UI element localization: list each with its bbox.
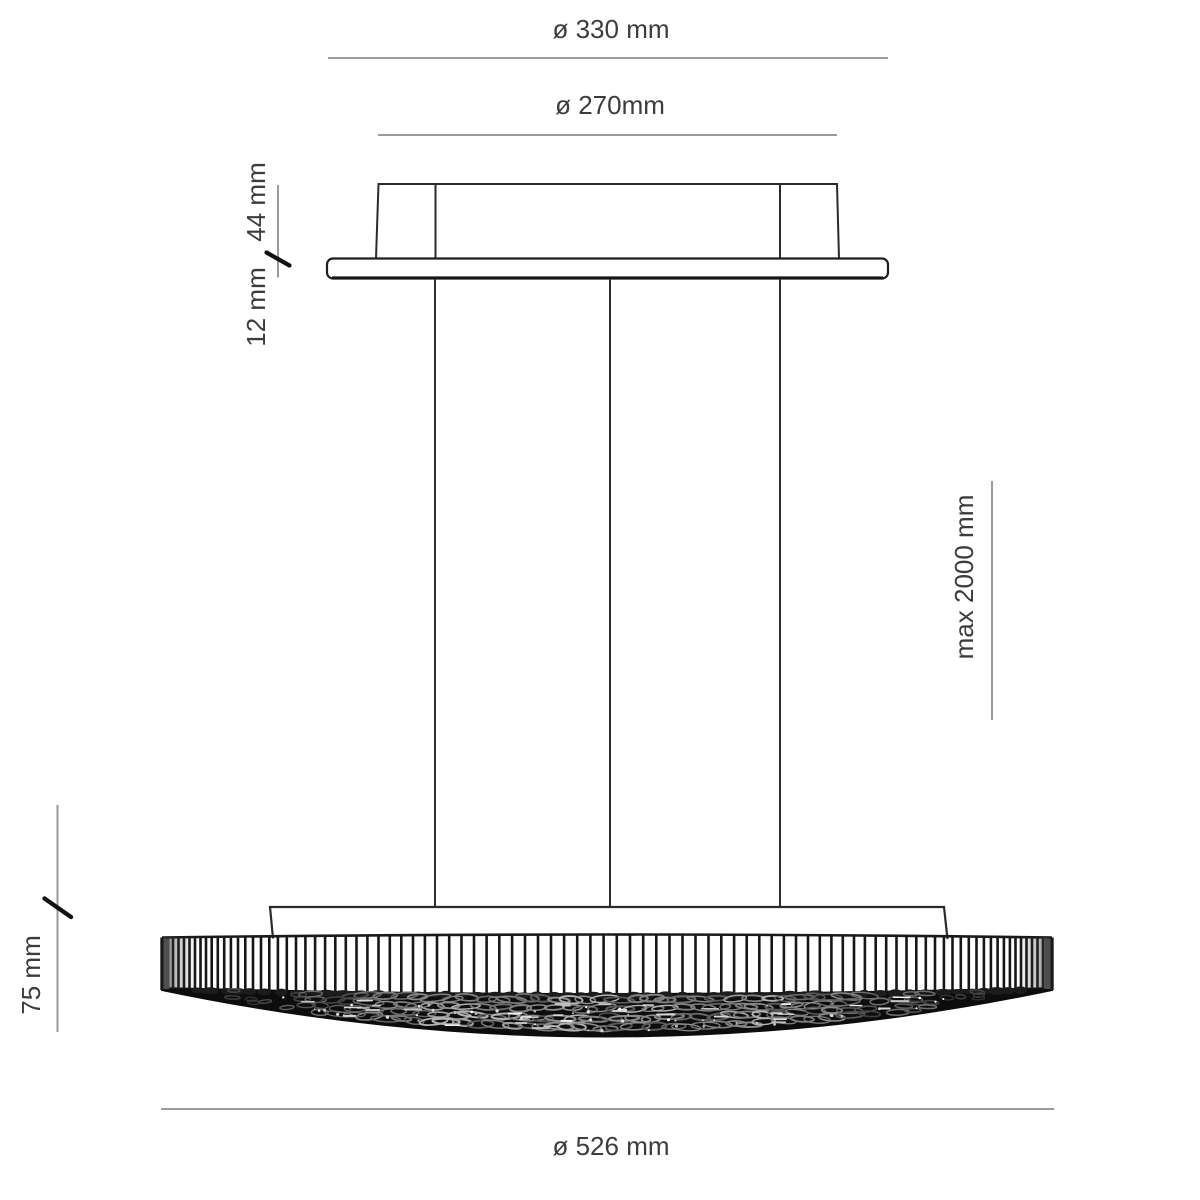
svg-text:max 2000 mm: max 2000 mm	[949, 495, 979, 660]
svg-text:44 mm: 44 mm	[241, 162, 271, 241]
svg-text:ø 526 mm: ø 526 mm	[552, 1131, 669, 1161]
svg-text:12 mm: 12 mm	[241, 267, 271, 346]
svg-text:75 mm: 75 mm	[16, 935, 46, 1014]
svg-text:ø 270mm: ø 270mm	[555, 90, 665, 120]
svg-text:ø 330 mm: ø 330 mm	[552, 14, 669, 44]
